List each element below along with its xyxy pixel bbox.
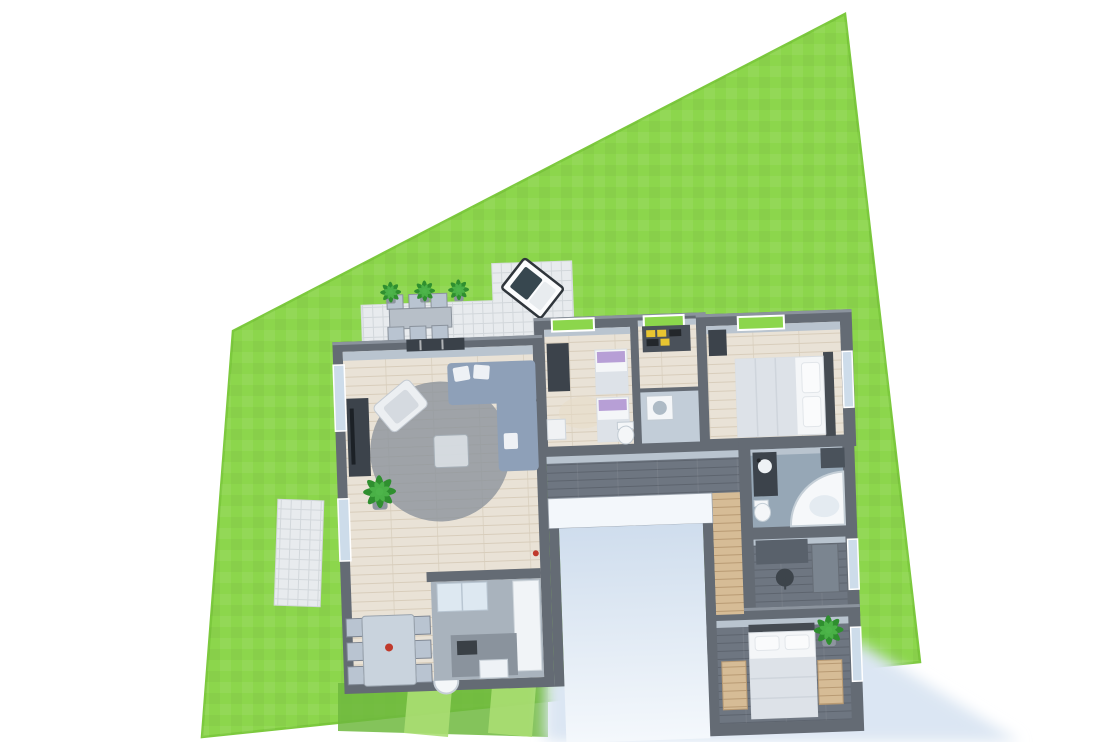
pillow bbox=[599, 399, 627, 411]
toilet bbox=[617, 426, 634, 445]
sofa-pillow bbox=[473, 365, 490, 380]
bathroom-cabinet bbox=[820, 447, 845, 468]
outdoor-dining-set bbox=[387, 293, 453, 341]
bedroom2-window bbox=[851, 627, 863, 681]
pillow bbox=[785, 635, 809, 650]
dining-chair bbox=[348, 666, 365, 685]
living-window bbox=[333, 365, 346, 431]
storage-box bbox=[657, 330, 666, 337]
storage-box bbox=[669, 329, 681, 336]
dining-chair bbox=[347, 642, 364, 661]
master-window bbox=[738, 315, 784, 330]
hallway-south-wall bbox=[548, 493, 713, 529]
coffee-table bbox=[434, 435, 469, 468]
floorplan-render bbox=[0, 0, 1117, 742]
cooktop bbox=[457, 640, 477, 655]
master-dresser bbox=[708, 329, 727, 356]
bed bbox=[748, 623, 817, 719]
pillow bbox=[801, 362, 820, 393]
sofa-pillow bbox=[504, 433, 519, 449]
toilet bbox=[754, 503, 771, 522]
terrace-door bbox=[406, 338, 464, 352]
garden-path bbox=[274, 499, 324, 607]
dining-chair bbox=[416, 664, 433, 683]
pillow bbox=[803, 396, 822, 427]
storage-box bbox=[646, 330, 655, 337]
master-side-window bbox=[842, 351, 854, 407]
wardrobe bbox=[547, 343, 571, 392]
corridor-floor bbox=[712, 492, 744, 615]
nightstand bbox=[722, 661, 748, 710]
dresser bbox=[547, 419, 566, 440]
lawn-stripe bbox=[404, 688, 452, 737]
lawn-stripe bbox=[488, 686, 536, 737]
dishwasher bbox=[480, 659, 509, 678]
nightstand bbox=[818, 660, 844, 705]
master-bed bbox=[735, 352, 836, 439]
office-cabinet bbox=[812, 544, 840, 593]
kids-window bbox=[552, 318, 594, 331]
house bbox=[330, 247, 867, 742]
dining-chair bbox=[415, 640, 432, 659]
courtyard bbox=[548, 493, 720, 742]
storage-room bbox=[642, 325, 691, 353]
scene-canvas bbox=[0, 0, 1117, 742]
vanity bbox=[752, 452, 778, 497]
dining-chair bbox=[414, 616, 431, 635]
office-window bbox=[848, 539, 860, 589]
living-window bbox=[338, 499, 351, 561]
courtyard-floor bbox=[559, 523, 710, 742]
sofa-pillow bbox=[452, 365, 470, 382]
dining-chair bbox=[346, 618, 363, 637]
kids-bed bbox=[595, 349, 629, 394]
pillow bbox=[755, 636, 779, 651]
storage-box bbox=[646, 339, 658, 346]
storage-box bbox=[660, 338, 669, 345]
pillow bbox=[597, 351, 625, 363]
desk bbox=[756, 539, 809, 565]
